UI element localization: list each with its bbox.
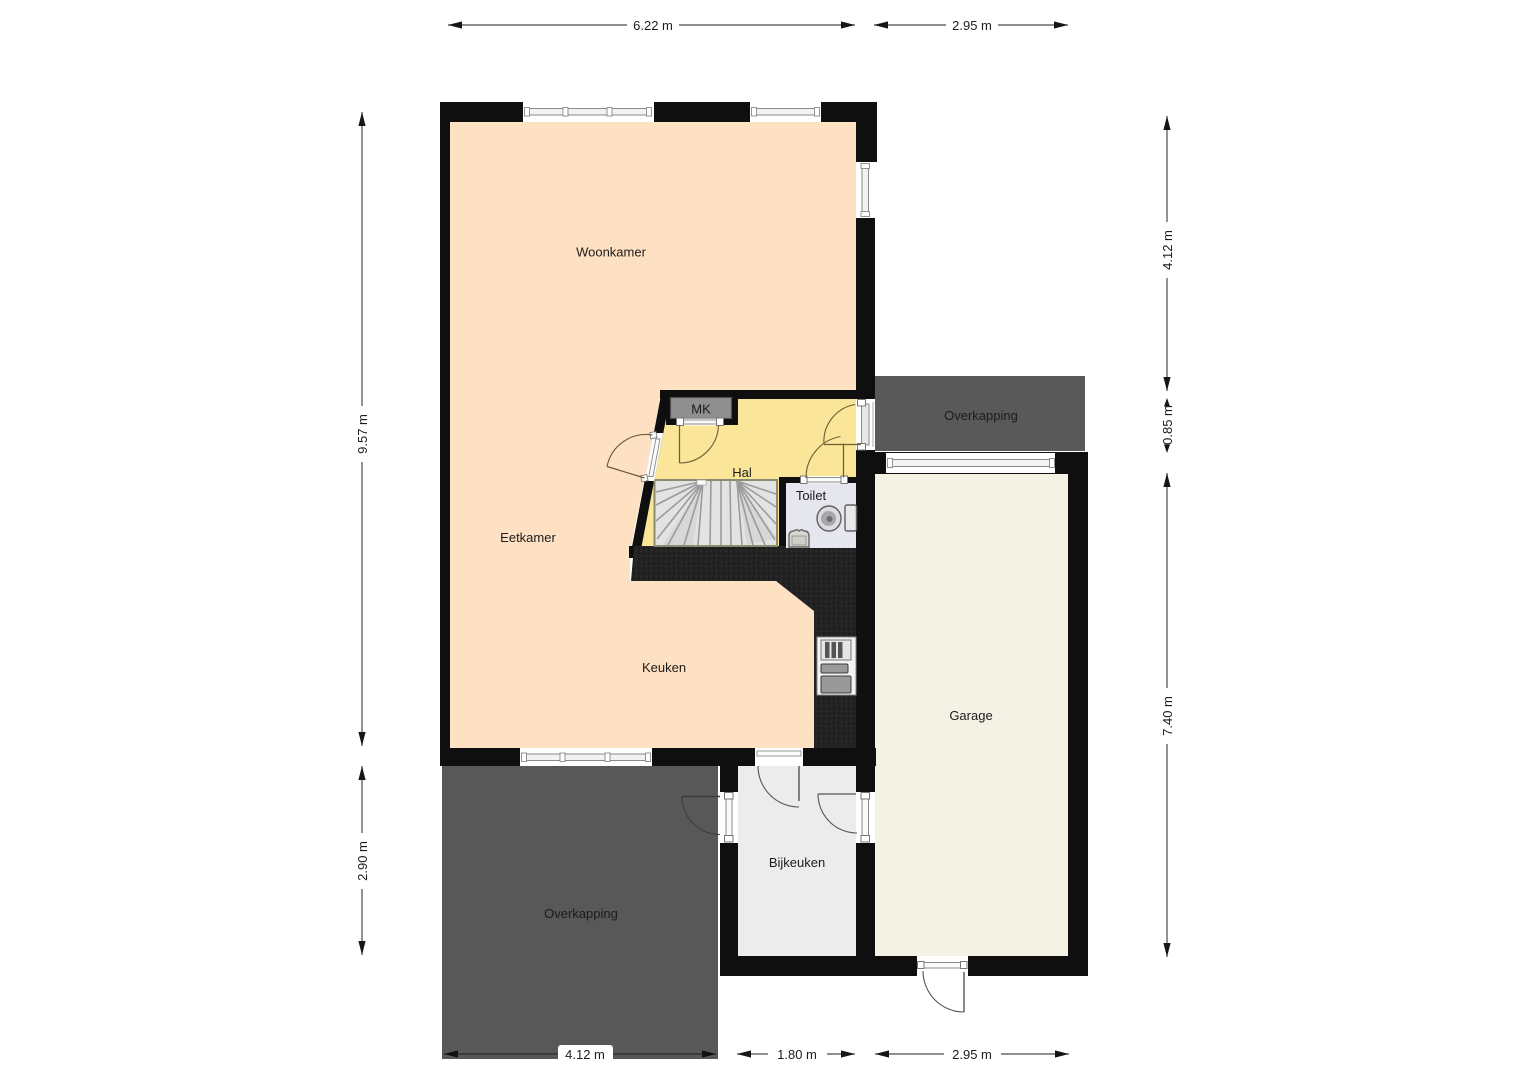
svg-text:Overkapping: Overkapping (544, 906, 618, 921)
svg-text:4.12 m: 4.12 m (1160, 230, 1175, 270)
svg-text:4.12 m: 4.12 m (565, 1047, 605, 1062)
svg-text:Garage: Garage (949, 708, 992, 723)
svg-text:1.80 m: 1.80 m (777, 1047, 817, 1062)
svg-text:6.22 m: 6.22 m (633, 18, 673, 33)
svg-text:7.40 m: 7.40 m (1160, 696, 1175, 736)
svg-text:Hal: Hal (732, 465, 752, 480)
svg-text:2.95 m: 2.95 m (952, 1047, 992, 1062)
svg-text:Eetkamer: Eetkamer (500, 530, 556, 545)
svg-text:MK: MK (691, 402, 711, 417)
svg-text:Bijkeuken: Bijkeuken (769, 855, 825, 870)
svg-text:2.90 m: 2.90 m (355, 841, 370, 881)
svg-text:0.85 m: 0.85 m (1160, 405, 1175, 445)
svg-text:Overkapping: Overkapping (944, 408, 1018, 423)
svg-text:Keuken: Keuken (642, 660, 686, 675)
svg-text:Woonkamer: Woonkamer (576, 245, 647, 260)
svg-text:9.57 m: 9.57 m (355, 414, 370, 454)
svg-text:2.95 m: 2.95 m (952, 18, 992, 33)
svg-text:Toilet: Toilet (796, 488, 827, 503)
